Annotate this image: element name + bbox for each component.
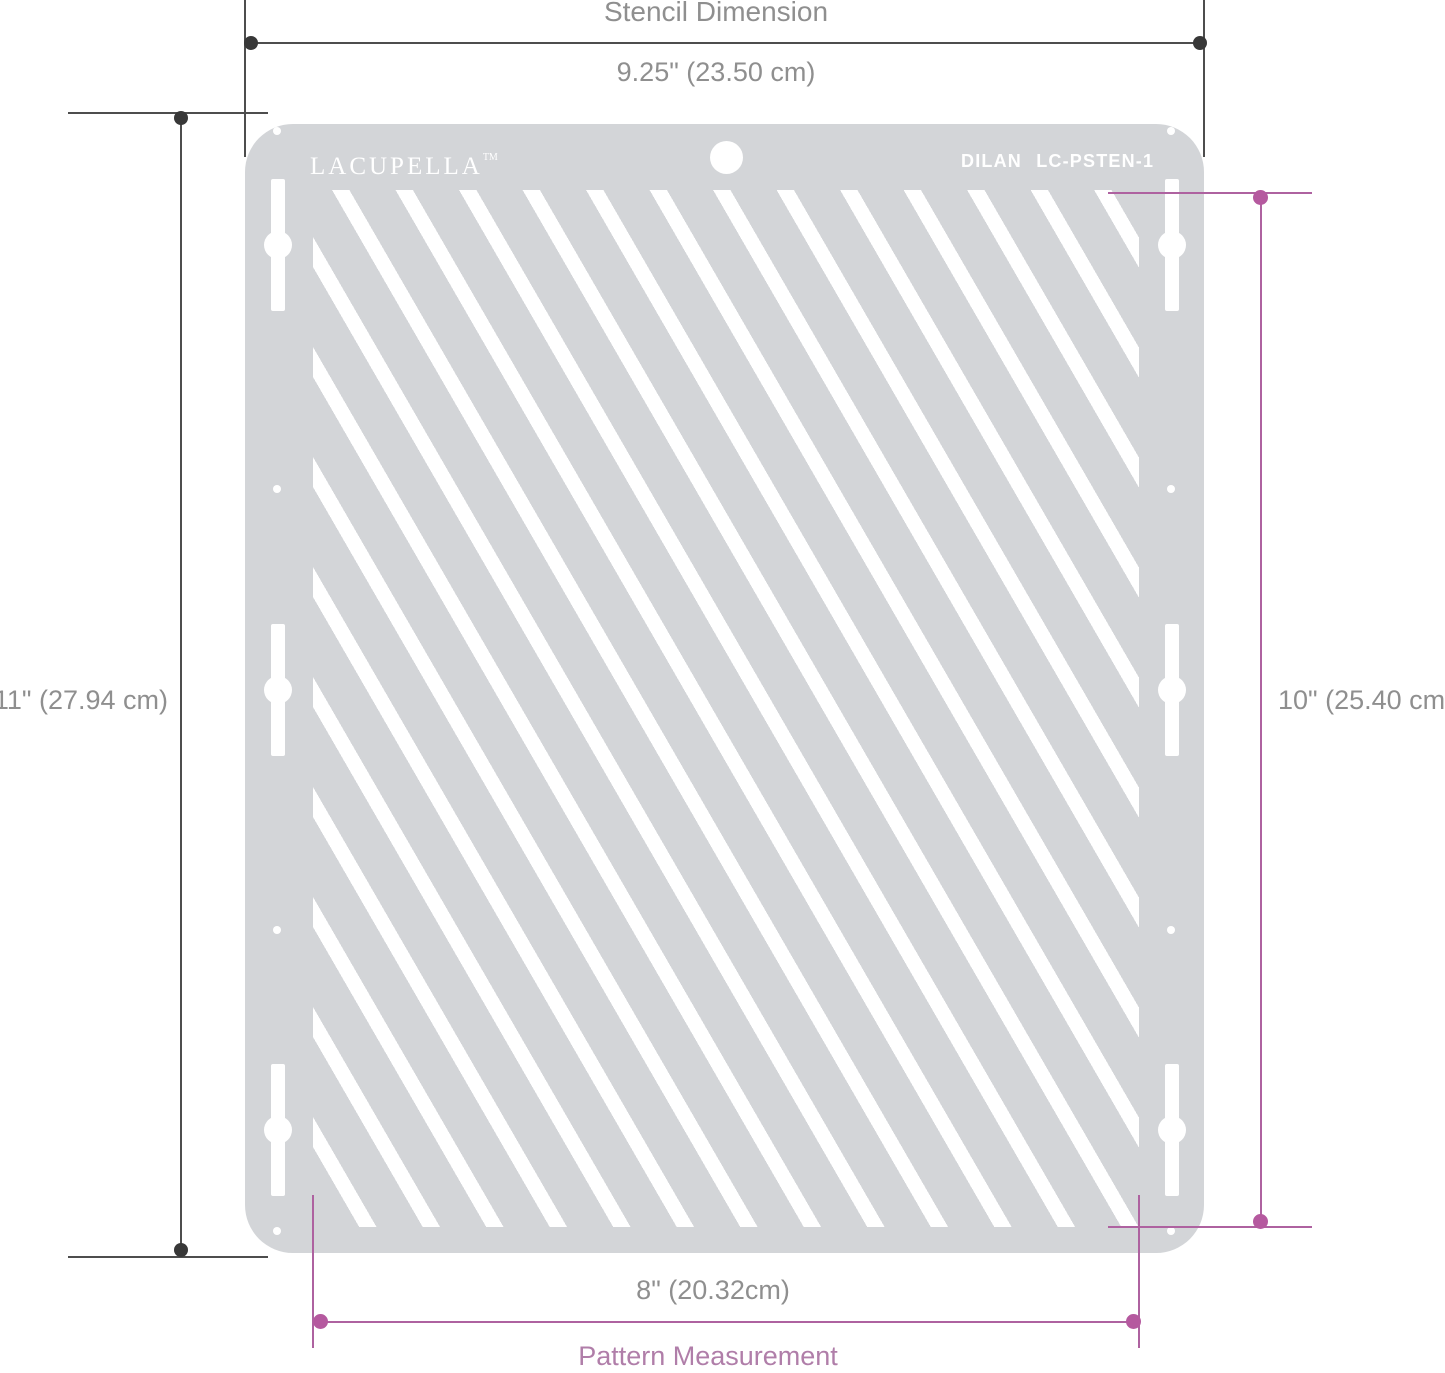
alignment-slot-right-top xyxy=(1158,179,1186,311)
alignment-slot-left-bottom xyxy=(264,1064,292,1196)
slot-knob xyxy=(1158,231,1186,259)
stencil-dimension-title: Stencil Dimension xyxy=(516,0,916,28)
trademark-symbol: TM xyxy=(483,152,498,163)
alignment-slot-left-top xyxy=(264,179,292,311)
registration-dot-right-top xyxy=(1167,127,1175,135)
stencil-height-dimension-line xyxy=(180,117,182,1251)
stencil-panel: LACUPELLATM DILAN LC-PSTEN-1 xyxy=(245,124,1204,1253)
pattern-width-dimension-line xyxy=(321,1321,1133,1323)
stencil-height-extension-line-bottom xyxy=(68,1256,268,1258)
pattern-dimension-endpoint-dot xyxy=(313,1314,328,1329)
dimension-endpoint-dot xyxy=(174,1243,188,1257)
registration-dot-left-top xyxy=(273,127,281,135)
diagonal-stripe-pattern xyxy=(313,190,1139,1227)
brand-text: LACUPELLA xyxy=(310,153,483,180)
stencil-width-extension-line-left xyxy=(244,0,246,157)
pattern-width-value: 8" (20.32cm) xyxy=(513,1274,913,1306)
dimension-endpoint-dot xyxy=(244,36,258,50)
slot-knob xyxy=(1158,676,1186,704)
pattern-height-dimension-line xyxy=(1260,197,1262,1222)
model-number: DILAN LC-PSTEN-1 xyxy=(961,150,1154,172)
slot-knob xyxy=(264,1116,292,1144)
stencil-width-extension-line-right xyxy=(1203,0,1205,157)
slot-knob xyxy=(264,676,292,704)
stencil-height-value: 11" (27.94 cm) xyxy=(0,684,168,716)
dimension-endpoint-dot xyxy=(174,111,188,125)
stencil-height-extension-line-top xyxy=(68,112,268,114)
pattern-height-extension-line-top xyxy=(1108,192,1312,194)
dimension-endpoint-dot xyxy=(1193,36,1207,50)
pattern-dimension-endpoint-dot xyxy=(1253,190,1268,205)
registration-dot-left-upper-middle xyxy=(273,485,281,493)
stencil-dimension-diagram: LACUPELLATM DILAN LC-PSTEN-1 Stencil Dim… xyxy=(0,0,1445,1373)
alignment-slot-left-middle xyxy=(264,624,292,756)
registration-dot-right-upper-middle xyxy=(1167,485,1175,493)
pattern-height-value: 10" (25.40 cm) xyxy=(1278,684,1445,716)
registration-dot-right-lower-middle xyxy=(1167,926,1175,934)
registration-dot-left-bottom xyxy=(273,1227,281,1235)
alignment-slot-right-middle xyxy=(1158,624,1186,756)
hanging-hole xyxy=(710,141,743,174)
slot-knob xyxy=(1158,1116,1186,1144)
alignment-slot-right-bottom xyxy=(1158,1064,1186,1196)
stencil-width-value: 9.25" (23.50 cm) xyxy=(516,56,916,88)
slot-knob xyxy=(264,231,292,259)
registration-dot-right-bottom xyxy=(1167,1227,1175,1235)
pattern-measurement-title: Pattern Measurement xyxy=(508,1340,908,1372)
pattern-dimension-endpoint-dot xyxy=(1126,1314,1141,1329)
registration-dot-left-lower-middle xyxy=(273,926,281,934)
pattern-dimension-endpoint-dot xyxy=(1253,1214,1268,1229)
stencil-width-dimension-line xyxy=(251,42,1200,44)
brand-logo: LACUPELLATM xyxy=(310,143,498,173)
